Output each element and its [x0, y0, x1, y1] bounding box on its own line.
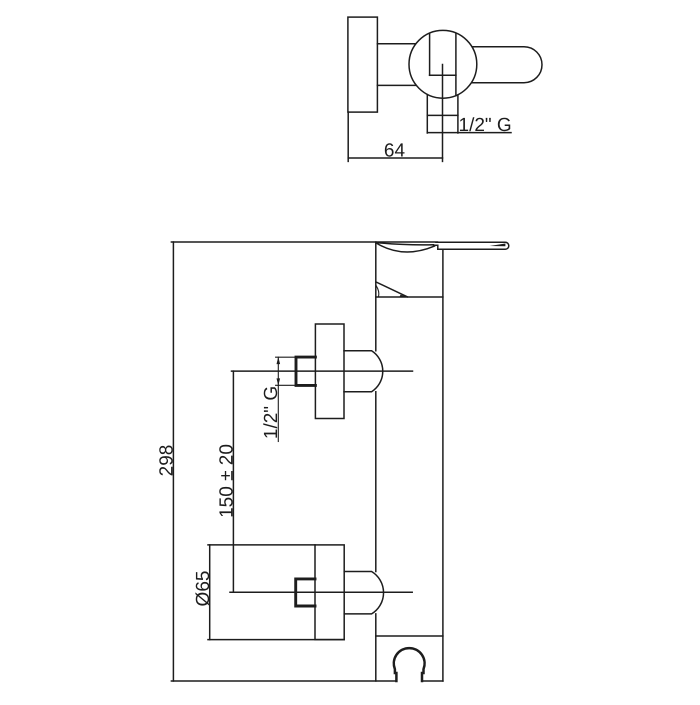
svg-text:150 ± 20: 150 ± 20	[217, 444, 238, 518]
svg-text:Ø65: Ø65	[193, 571, 214, 607]
svg-text:298: 298	[157, 445, 178, 477]
svg-text:1/2" G: 1/2" G	[459, 115, 512, 136]
svg-text:1/2" G: 1/2" G	[261, 386, 282, 439]
svg-text:64: 64	[384, 141, 406, 162]
